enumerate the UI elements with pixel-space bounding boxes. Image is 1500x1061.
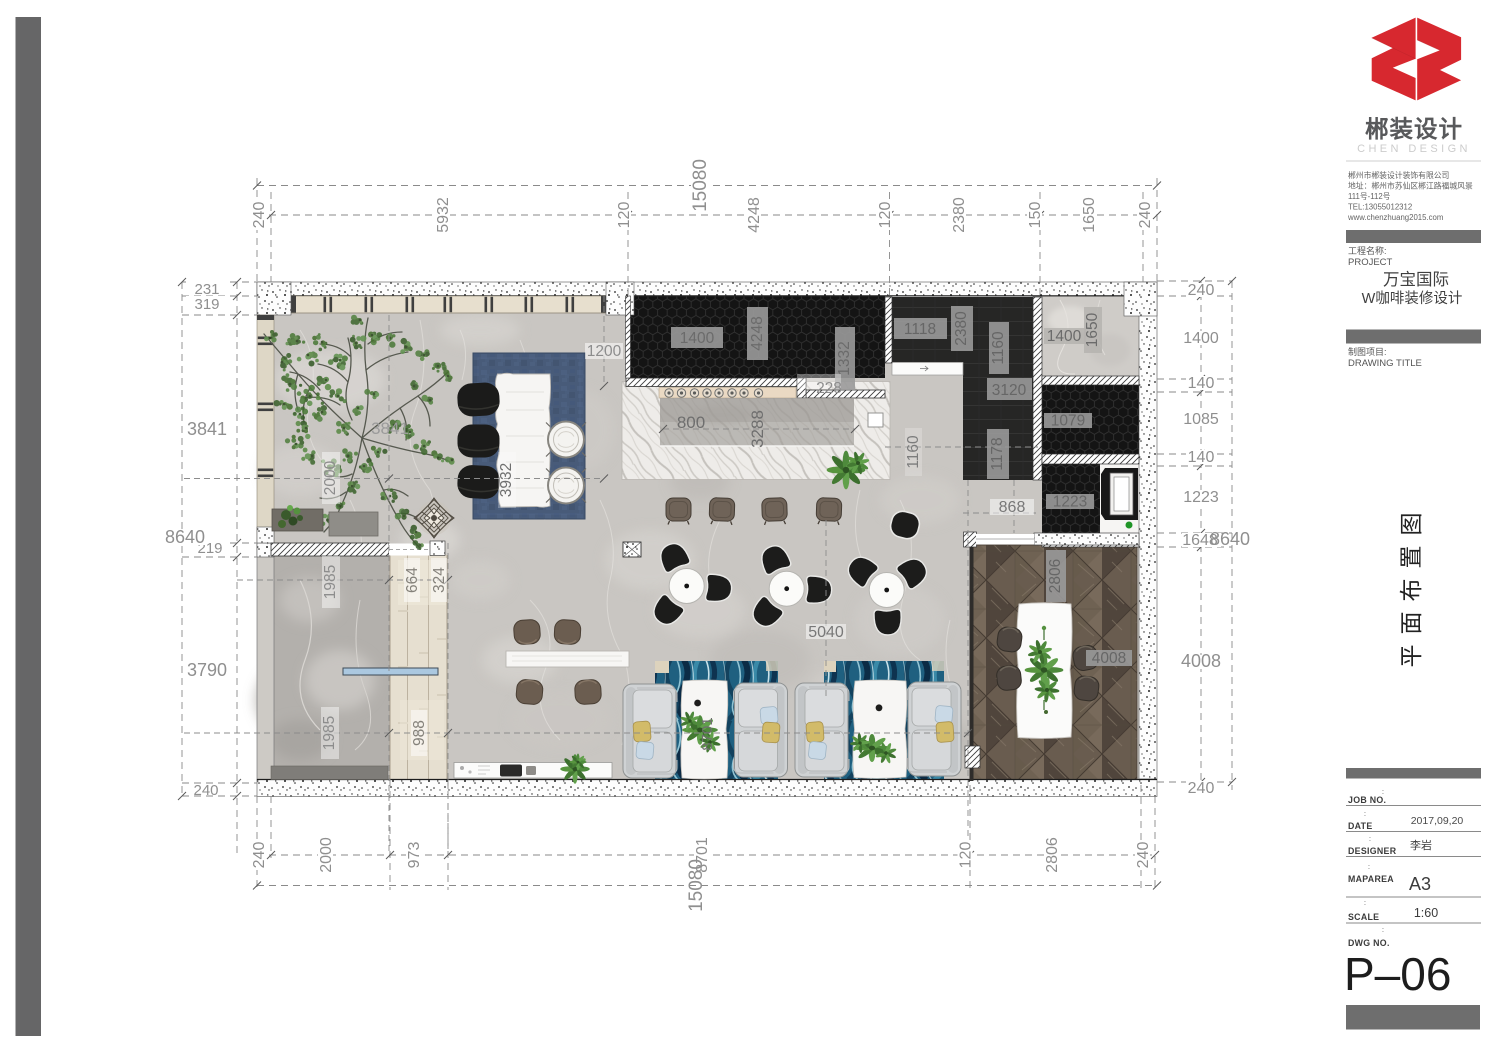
svg-text:240: 240 [1135,842,1152,869]
svg-text:3932: 3932 [498,463,515,497]
svg-text:1178: 1178 [989,437,1006,470]
svg-text:制图项目:: 制图项目: [1348,346,1387,357]
svg-text:3841: 3841 [371,419,409,438]
svg-text:8640: 8640 [165,527,205,547]
svg-text:240: 240 [251,842,268,869]
svg-text:3790: 3790 [187,660,227,680]
svg-text:1160: 1160 [905,435,922,469]
svg-text:P–06: P–06 [1344,948,1451,1000]
svg-text:2000: 2000 [322,460,339,495]
svg-text:1223: 1223 [1183,489,1219,506]
svg-text:CHEN DESIGN: CHEN DESIGN [1357,143,1471,155]
svg-text:郴州市郴装设计装饰有限公司: 郴州市郴装设计装饰有限公司 [1348,170,1449,180]
svg-text:1400: 1400 [1047,328,1082,345]
svg-text:800: 800 [677,413,705,432]
svg-text:2806: 2806 [1047,559,1064,593]
svg-text:140: 140 [1188,375,1215,392]
svg-text::: : [1369,836,1371,843]
svg-text:万宝国际: 万宝国际 [1383,270,1449,289]
svg-text:4008: 4008 [1181,651,1221,671]
svg-text:1223: 1223 [1053,494,1087,511]
svg-text:SCALE: SCALE [1348,912,1379,922]
svg-text::: : [1382,927,1384,934]
svg-text::: : [1364,900,1366,907]
svg-text:1400: 1400 [1183,330,1219,347]
svg-text:1085: 1085 [1183,411,1219,428]
svg-text:150: 150 [1027,202,1044,229]
svg-text:5040: 5040 [808,624,844,641]
svg-text:8701: 8701 [699,717,716,750]
svg-text:1:60: 1:60 [1414,906,1438,920]
svg-text:4248: 4248 [749,316,766,350]
svg-text:120: 120 [958,842,975,869]
svg-text:2806: 2806 [1044,837,1061,873]
svg-text:MAPAREA: MAPAREA [1348,874,1394,884]
svg-text::: : [1368,864,1370,871]
svg-text:1650: 1650 [1084,312,1101,347]
svg-text:1985: 1985 [322,565,339,599]
svg-text:2380: 2380 [951,197,968,233]
svg-text:DATE: DATE [1348,821,1373,831]
svg-text:15080: 15080 [690,159,711,212]
svg-text:JOB NO.: JOB NO. [1348,795,1386,805]
svg-text:A3: A3 [1409,874,1431,894]
svg-text:111号-112号: 111号-112号 [1348,192,1391,201]
svg-text:8640: 8640 [1210,529,1250,549]
svg-text:TEL:13055012312: TEL:13055012312 [1348,203,1412,212]
svg-text:2380: 2380 [953,311,970,346]
svg-text:1200: 1200 [587,343,622,360]
svg-text:李岩: 李岩 [1410,838,1432,852]
svg-text:4248: 4248 [746,197,763,233]
svg-text:319: 319 [194,296,219,313]
svg-text:3120: 3120 [992,382,1027,399]
svg-text:1400: 1400 [680,330,715,347]
svg-text:PROJECT: PROJECT [1348,257,1393,268]
svg-text:240: 240 [1188,780,1215,797]
svg-text:240: 240 [193,782,218,799]
svg-text::: : [1364,811,1366,818]
svg-text:地址：郴州市苏仙区郴江路福城风景: 地址：郴州市苏仙区郴江路福城风景 [1348,181,1473,191]
svg-text:2017,09,20: 2017,09,20 [1411,815,1464,827]
svg-text:平面布置图: 平面布置图 [1398,503,1424,668]
svg-text:1650: 1650 [1081,197,1098,233]
svg-text:324: 324 [431,567,448,593]
svg-text:DRAWING TITLE: DRAWING TITLE [1348,358,1422,369]
svg-text:3841: 3841 [187,419,227,439]
svg-text:1118: 1118 [904,321,936,338]
svg-text:郴装设计: 郴装设计 [1365,116,1463,142]
svg-text:664: 664 [404,567,421,593]
svg-text:240: 240 [1188,282,1215,299]
svg-text:1985: 1985 [321,716,338,750]
svg-text:240: 240 [251,202,268,229]
svg-text:120: 120 [616,202,633,229]
svg-text:868: 868 [999,499,1026,516]
svg-text:15080: 15080 [686,859,707,912]
svg-text:2000: 2000 [318,837,335,873]
svg-text:988: 988 [411,720,428,746]
svg-text:工程名称:: 工程名称: [1348,245,1387,256]
svg-text:www.chenzhuang2015.com: www.chenzhuang2015.com [1347,213,1443,222]
svg-text:5932: 5932 [435,197,452,233]
svg-text:1160: 1160 [990,331,1007,365]
svg-text:W咖啡装修设计: W咖啡装修设计 [1362,290,1463,307]
svg-text:DESIGNER: DESIGNER [1348,846,1397,856]
svg-text:3288: 3288 [748,410,767,448]
svg-text:120: 120 [877,202,894,229]
svg-text:1332: 1332 [836,341,853,375]
svg-text:140: 140 [1188,449,1215,466]
svg-text:1079: 1079 [1051,413,1085,430]
svg-text:DWG NO.: DWG NO. [1348,938,1390,948]
svg-text:973: 973 [406,842,423,869]
svg-text:228: 228 [816,380,842,397]
svg-text:240: 240 [1137,202,1154,229]
svg-text:4008: 4008 [1092,650,1126,667]
